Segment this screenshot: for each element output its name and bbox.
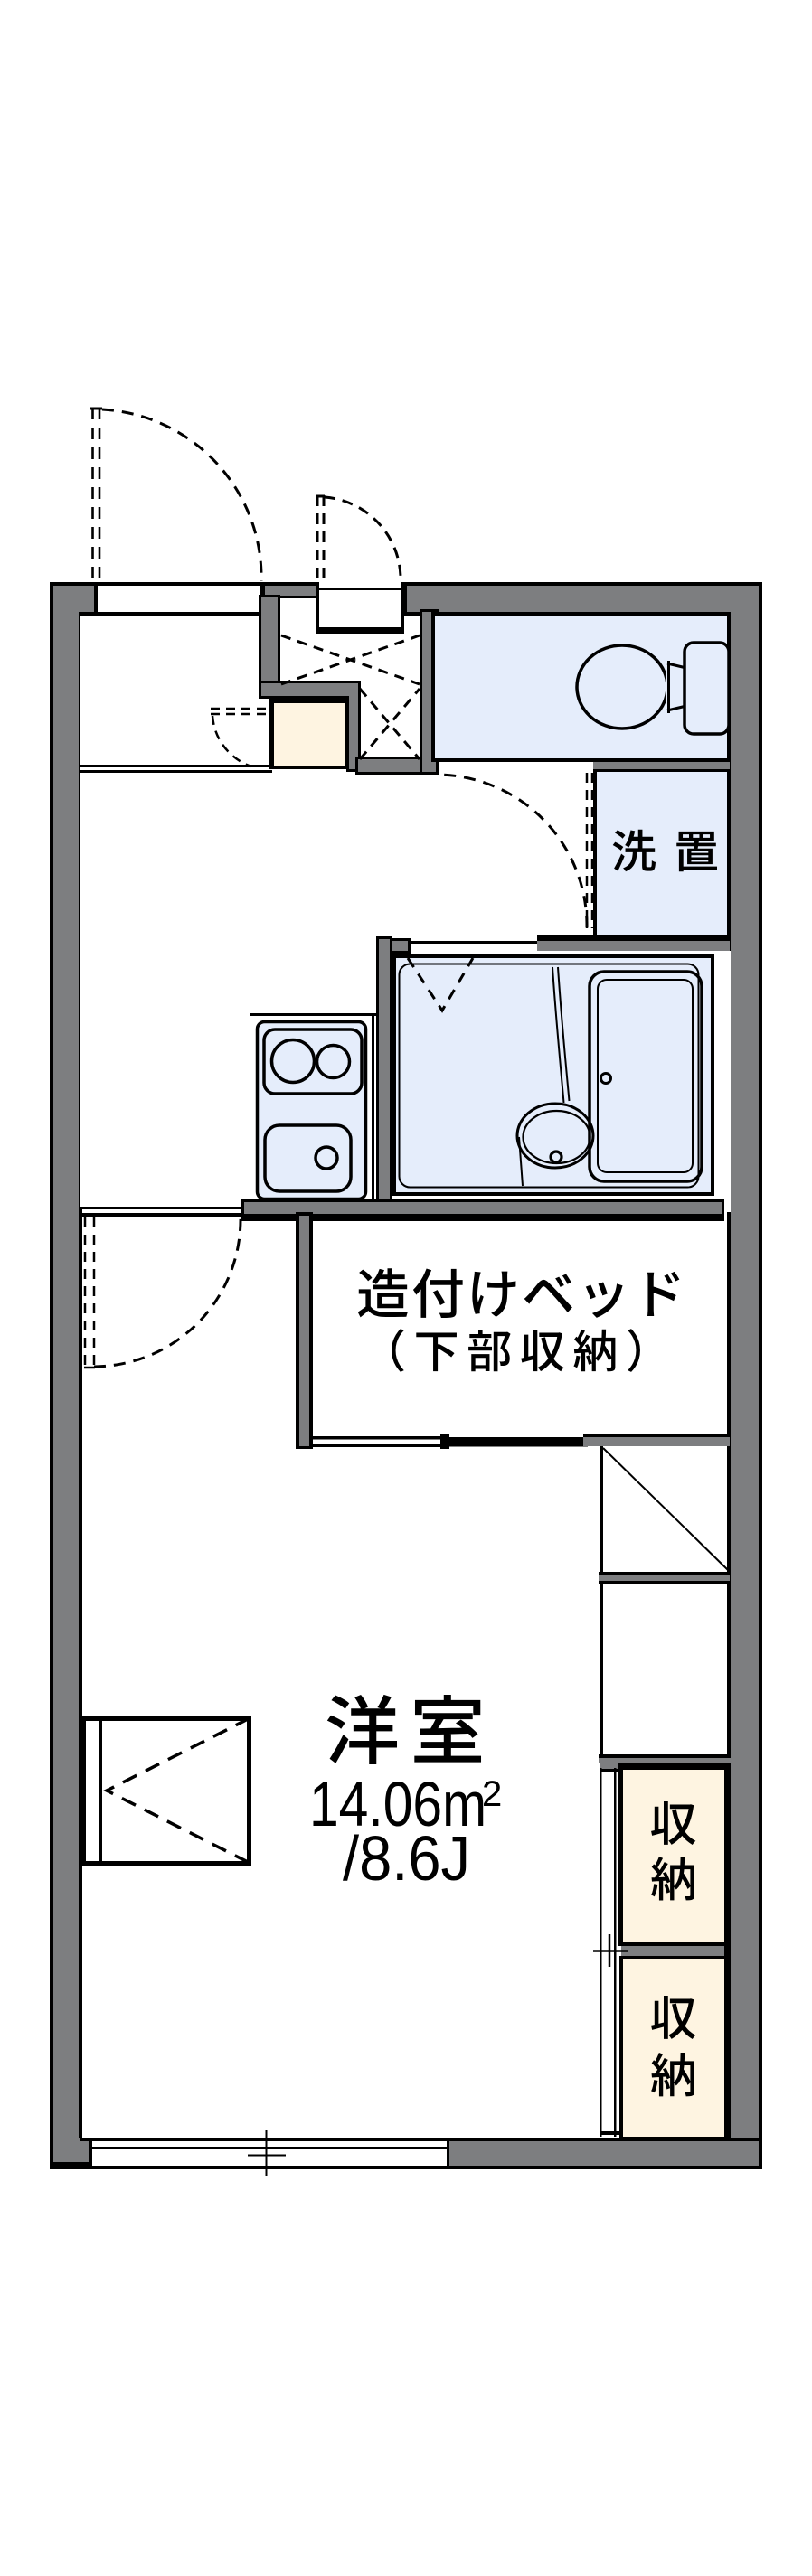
svg-text:/8.6J: /8.6J [343,1824,470,1894]
svg-text:2: 2 [482,1774,502,1814]
